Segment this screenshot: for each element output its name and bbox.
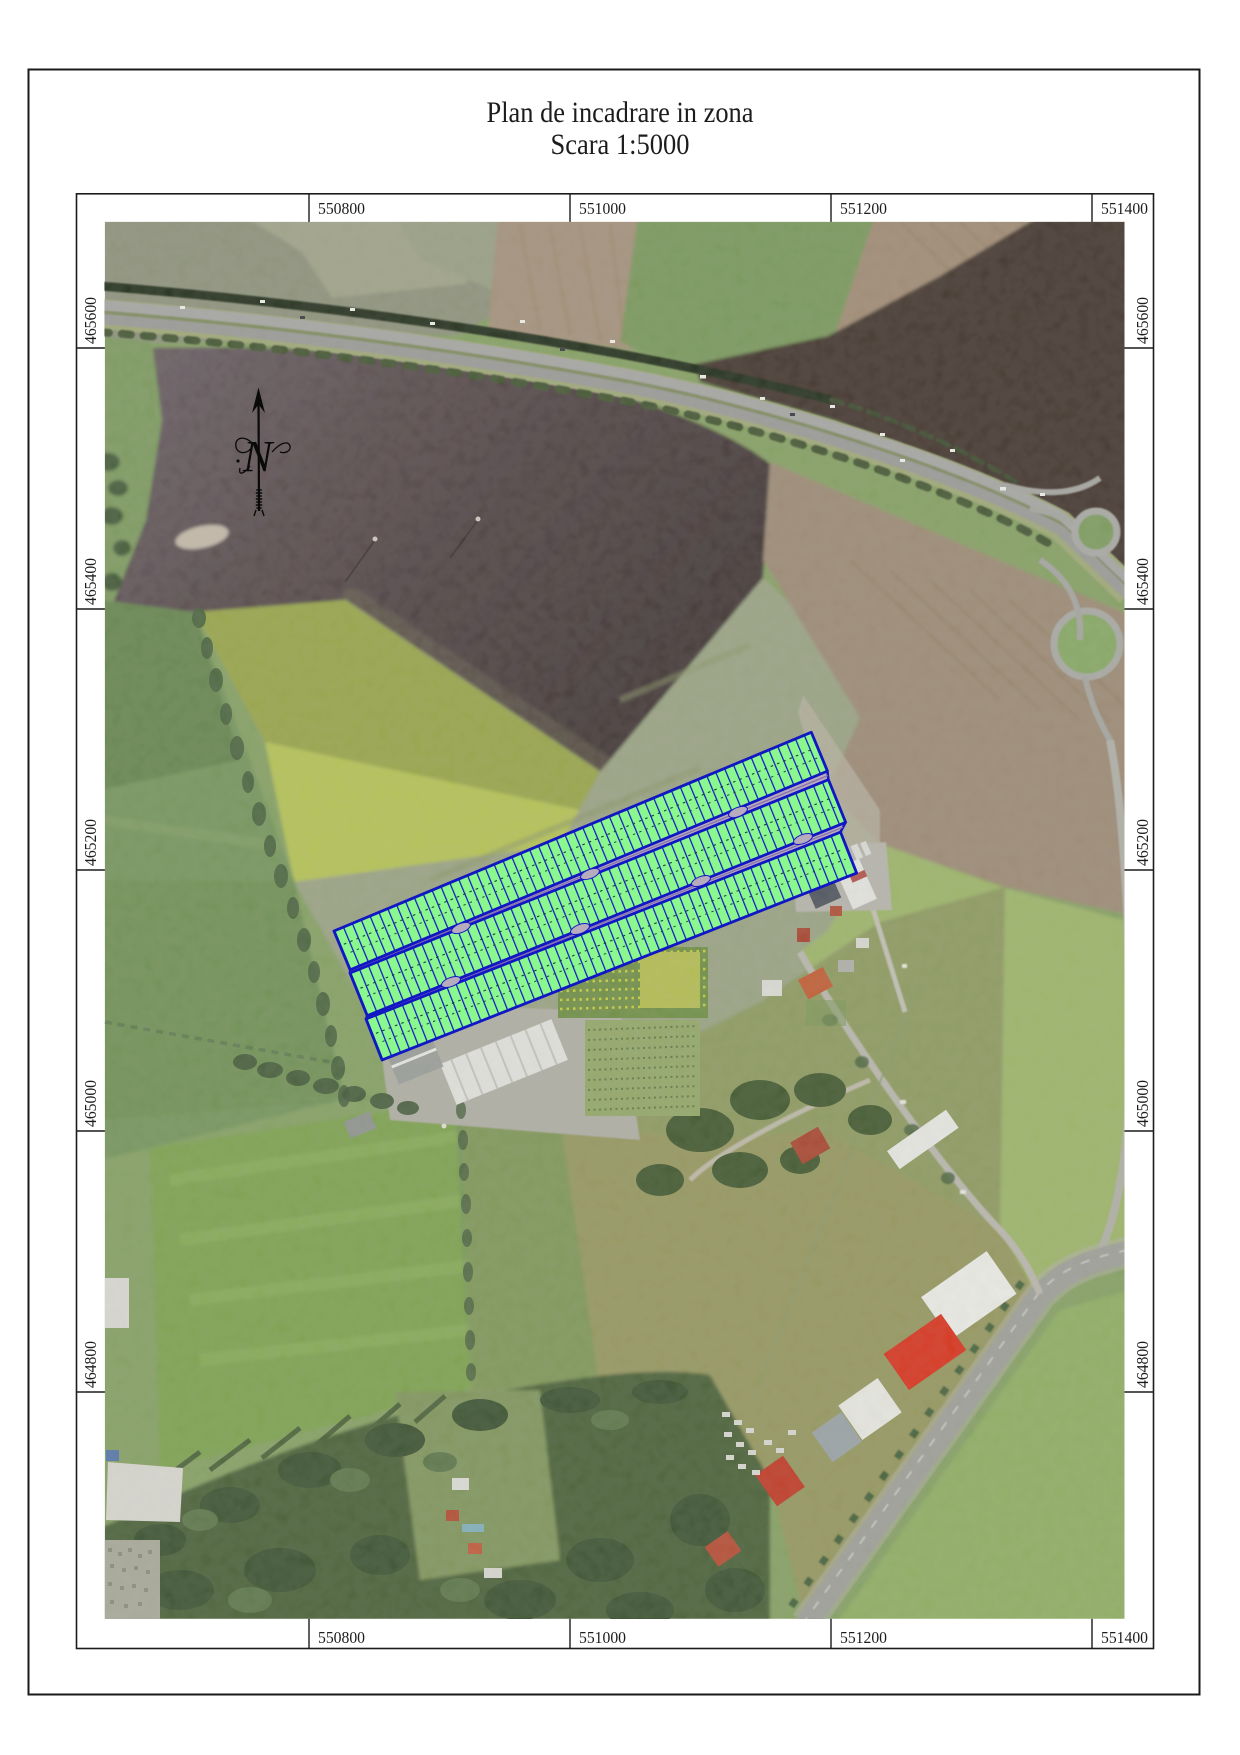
svg-text:465600: 465600 [1133,297,1152,344]
svg-text:465000: 465000 [1133,1080,1152,1127]
svg-text:551200: 551200 [840,199,887,218]
svg-text:464800: 464800 [81,1341,100,1388]
svg-text:551000: 551000 [579,1628,626,1647]
svg-text:551400: 551400 [1101,199,1148,218]
svg-text:Plan de incadrare in zona: Plan de incadrare in zona [487,96,754,129]
svg-text:464800: 464800 [1133,1341,1152,1388]
svg-text:465400: 465400 [1133,558,1152,605]
svg-text:551000: 551000 [579,199,626,218]
svg-text:465600: 465600 [81,297,100,344]
svg-text:550800: 550800 [318,199,365,218]
svg-text:465000: 465000 [81,1080,100,1127]
svg-text:550800: 550800 [318,1628,365,1647]
svg-text:465200: 465200 [81,819,100,866]
svg-text:465200: 465200 [1133,819,1152,866]
svg-text:551400: 551400 [1101,1628,1148,1647]
svg-text:465400: 465400 [81,558,100,605]
svg-text:Scara 1:5000: Scara 1:5000 [551,128,690,161]
svg-text:551200: 551200 [840,1628,887,1647]
